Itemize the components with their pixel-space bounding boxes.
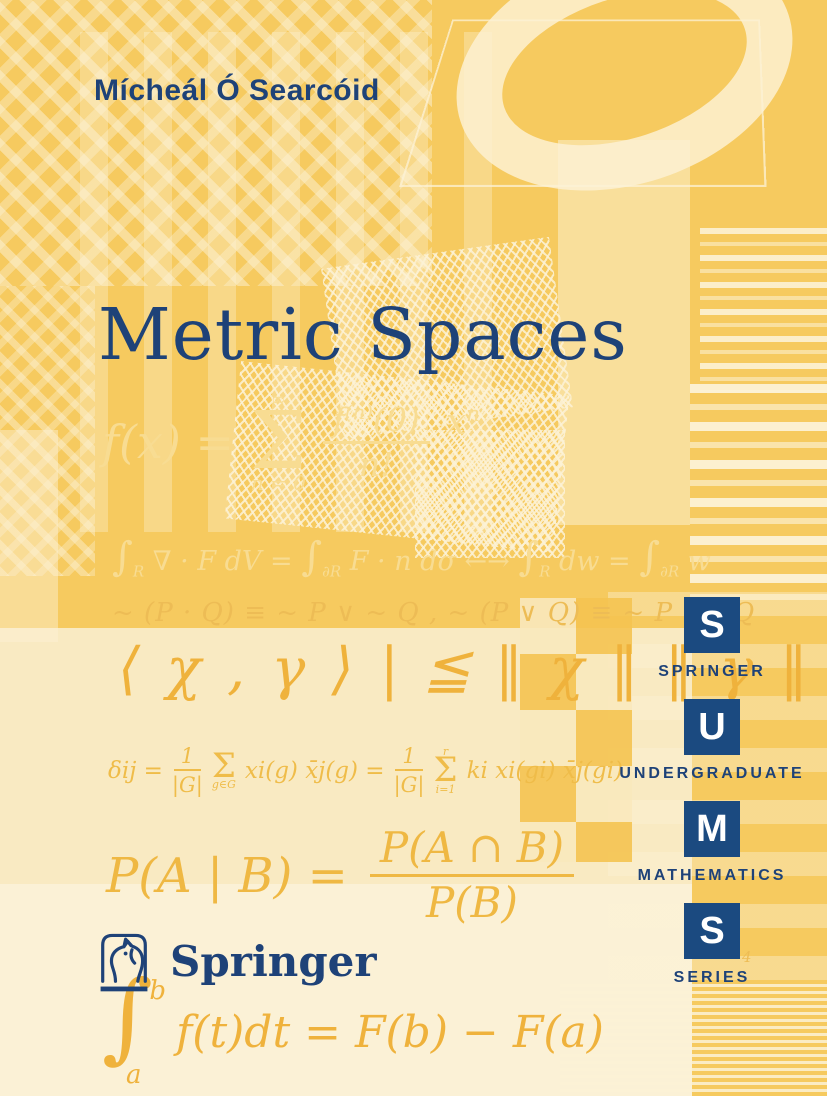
formula-conditional-probability: P(A | B) = P(A ∩ B) P(B) [106, 824, 574, 928]
summation-symbol: Σ g∈G [212, 752, 236, 790]
sums-word: SERIES [674, 969, 751, 987]
springer-horse-icon [92, 928, 156, 994]
integral-sign: ∫ [639, 534, 660, 580]
integral-sign: ∫ [518, 534, 539, 580]
formula-taylor-series: f(x) = ∞ Σ n = 0 f(n)(0) n! xn [102, 392, 480, 492]
book-cover: Mícheál Ó Searcóid Metric Spaces f(x) = … [0, 0, 827, 1096]
double-arrow: ←→ [464, 546, 518, 577]
fraction: 1 |G| [394, 744, 425, 797]
formula-rhs: xn [446, 402, 480, 443]
sums-word: UNDERGRADUATE [619, 765, 804, 783]
sums-letter: U [698, 708, 725, 746]
fraction: P(A ∩ B) P(B) [370, 824, 574, 928]
summation-symbol: r Σ i=1 [434, 747, 458, 795]
sums-letter: M [696, 810, 728, 848]
formula-lhs: f(x) = [102, 415, 234, 469]
sums-letter-square: S [684, 903, 740, 959]
publisher-logo-block: Springer [92, 928, 377, 994]
sums-letter-square: M [684, 801, 740, 857]
sums-word: SPRINGER [658, 663, 766, 681]
fraction: 1 |G| [172, 744, 203, 797]
formula-character-orthogonality: δij = 1 |G| Σ g∈G xi(g) x̄j(g) = 1 |G| r… [108, 744, 623, 797]
sums-letter-square: S [684, 597, 740, 653]
author-name: Mícheál Ó Searcóid [94, 74, 380, 108]
stripe-pattern [700, 228, 827, 393]
fraction: f(n)(0) n! [323, 401, 430, 484]
formula-fundamental-theorem-calculus: b ∫ a f(t)dt = F(b) − F(a) [92, 980, 604, 1084]
sums-letter: S [699, 912, 724, 950]
book-title: Metric Spaces [98, 296, 628, 374]
integral-sign: ∫ [112, 534, 133, 580]
left-pale-strip [0, 430, 58, 642]
summation-symbol: ∞ Σ n = 0 [250, 392, 307, 492]
sums-letter-square: U [684, 699, 740, 755]
publisher-name: Springer [170, 937, 377, 986]
formula-divergence-theorem: ∫R ∇ · F dV = ∫∂R F · n dσ ←→ ∫R dw = ∫∂… [112, 534, 711, 580]
integral-sign: b ∫ a [92, 980, 168, 1084]
box-wireframe [399, 20, 766, 187]
sums-word: MATHEMATICS [638, 867, 787, 885]
decorative-exponent: 4 [742, 948, 752, 966]
integral-sign: ∫ [301, 534, 322, 580]
leq-sign: ≦ [423, 636, 475, 702]
sums-letter: S [699, 606, 724, 644]
sums-series-sidebar: S SPRINGER U UNDERGRADUATE M MATHEMATICS… [612, 597, 812, 1005]
